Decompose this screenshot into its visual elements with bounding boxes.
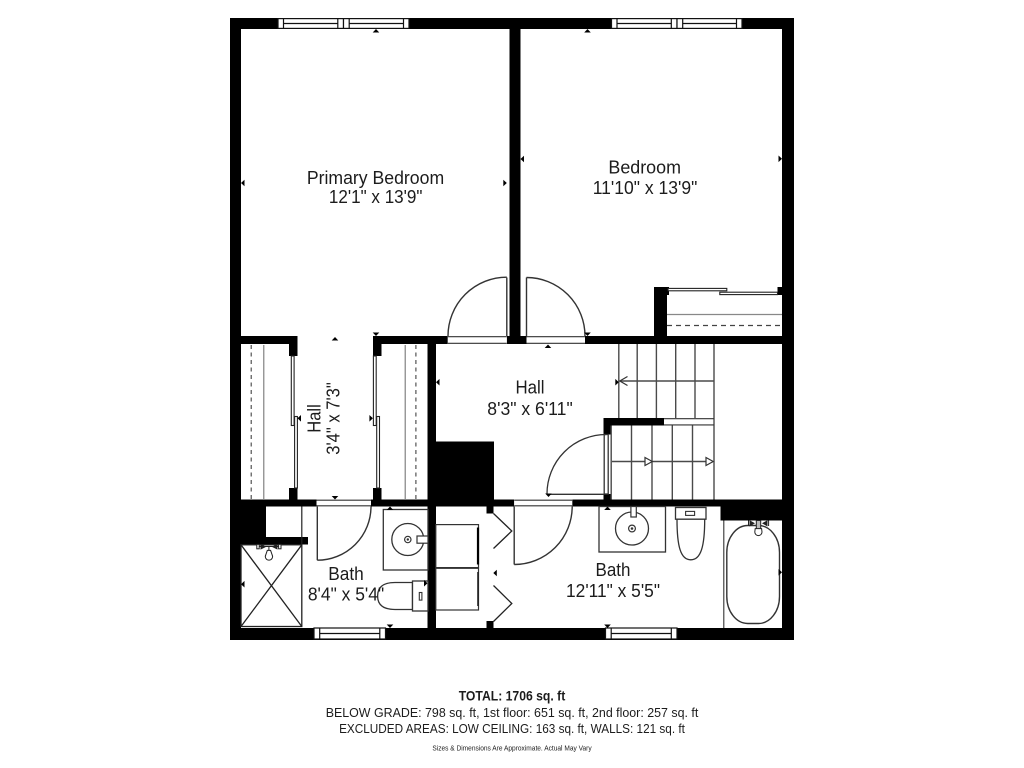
svg-text:8'3" x 6'11": 8'3" x 6'11" (487, 398, 572, 419)
svg-text:3'4" x 7'3": 3'4" x 7'3" (323, 382, 344, 455)
svg-text:12'11" x 5'5": 12'11" x 5'5" (566, 580, 660, 601)
svg-text:8'4" x 5'4": 8'4" x 5'4" (308, 583, 384, 604)
svg-text:EXCLUDED AREAS: LOW CEILING: 1: EXCLUDED AREAS: LOW CEILING: 163 sq. ft,… (339, 721, 685, 736)
svg-text:Bath: Bath (596, 559, 631, 580)
svg-text:Bath: Bath (328, 563, 364, 584)
svg-text:12'1" x 13'9": 12'1" x 13'9" (329, 186, 423, 207)
svg-text:Bedroom: Bedroom (608, 157, 681, 178)
svg-text:Hall: Hall (304, 404, 325, 433)
svg-text:TOTAL: 1706 sq. ft: TOTAL: 1706 sq. ft (459, 688, 566, 703)
svg-text:Hall: Hall (516, 377, 545, 398)
svg-text:BELOW GRADE: 798 sq. ft, 1st f: BELOW GRADE: 798 sq. ft, 1st floor: 651 … (326, 705, 699, 720)
svg-text:Primary Bedroom: Primary Bedroom (307, 167, 444, 188)
svg-text:11'10" x 13'9": 11'10" x 13'9" (593, 177, 698, 198)
svg-text:Sizes & Dimensions Are Approxi: Sizes & Dimensions Are Approximate. Actu… (432, 744, 592, 753)
